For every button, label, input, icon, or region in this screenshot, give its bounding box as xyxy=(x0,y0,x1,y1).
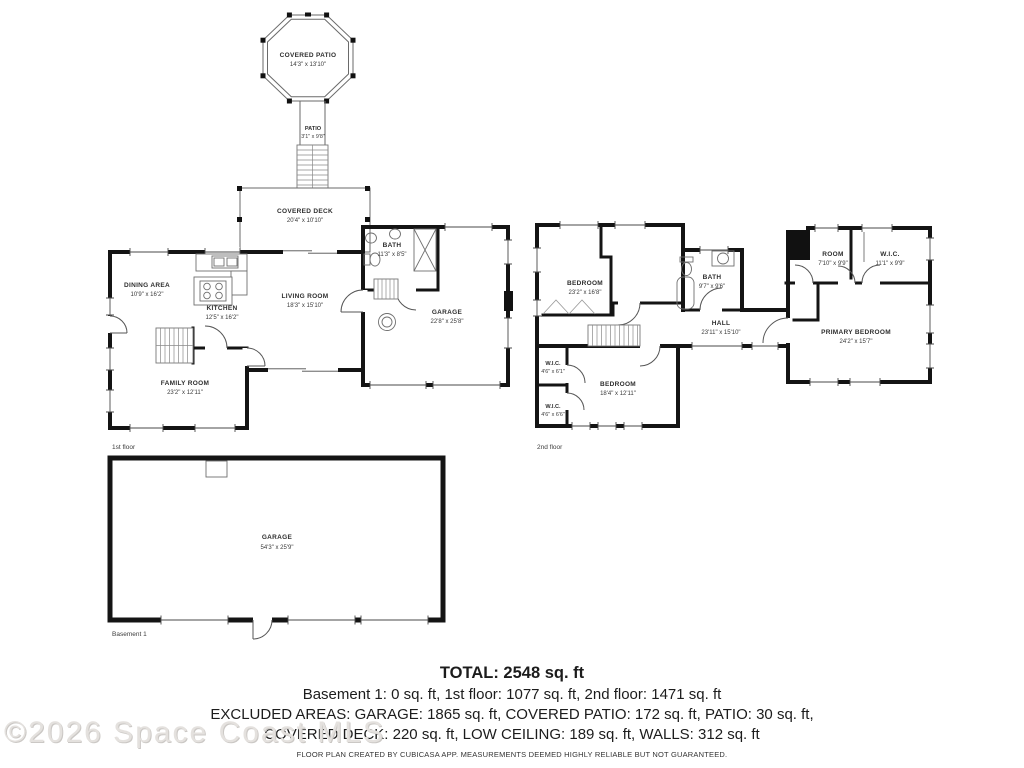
room-label-bath-1f: BATH 11'3" x 8'5" xyxy=(377,242,406,258)
total-area: TOTAL: 2548 sq. ft xyxy=(0,664,1024,683)
room-name: BEDROOM xyxy=(600,381,636,388)
room-dims: 9'7" x 9'6" xyxy=(699,284,725,290)
room-dims: 20'4" x 10'10" xyxy=(287,218,323,224)
room-dims: 3'1" x 9'8" xyxy=(301,134,325,140)
door xyxy=(563,393,584,410)
room-label-bath-2f: BATH 9'7" x 9'6" xyxy=(699,274,725,290)
room-label-bedroom-2f: BEDROOM 18'4" x 12'11" xyxy=(600,381,636,397)
sliding-door xyxy=(283,248,337,257)
window xyxy=(106,390,115,412)
room-name: ROOM xyxy=(822,251,843,258)
window xyxy=(615,221,645,230)
window xyxy=(926,238,935,260)
window xyxy=(862,224,892,233)
door xyxy=(763,318,793,343)
room-name: COVERED PATIO xyxy=(280,52,337,59)
door xyxy=(563,365,585,383)
room-dims: 12'5" x 16'2" xyxy=(206,315,239,321)
door xyxy=(640,342,660,367)
room-name: GARAGE xyxy=(262,534,293,541)
room-name: PRIMARY BEDROOM xyxy=(821,329,891,336)
room-name: LIVING ROOM xyxy=(282,293,329,300)
floor-plan-page: COVERED PATIO 14'3" x 13'10" PATIO 3'1" … xyxy=(0,0,1024,768)
window xyxy=(810,378,838,387)
room-name: BATH xyxy=(383,242,402,249)
room-name: BATH xyxy=(703,274,722,281)
window xyxy=(504,318,513,348)
window xyxy=(195,424,235,433)
window xyxy=(106,348,115,370)
room-dims: 23'2" x 12'11" xyxy=(167,390,203,396)
room-dims: 18'3" x 15'10" xyxy=(287,303,323,309)
room-dims: 4'6" x 6'6" xyxy=(541,412,565,418)
room-name: BEDROOM xyxy=(567,280,603,287)
room-label-patio: PATIO 3'1" x 9'8" xyxy=(301,126,325,140)
door xyxy=(253,615,272,639)
window xyxy=(926,305,935,333)
floor-plan-drawing: COVERED PATIO 14'3" x 13'10" PATIO 3'1" … xyxy=(0,0,1024,768)
room-label-hall: HALL 23'11" x 15'10" xyxy=(701,320,740,336)
room-label-dining-area: DINING AREA 10'9" x 16'2" xyxy=(124,282,170,298)
door xyxy=(205,326,227,353)
room-label-wic-right: W.I.C. 11'1" x 9'9" xyxy=(875,251,904,267)
window xyxy=(533,300,542,316)
garage-door xyxy=(370,381,426,390)
room-label-garage-1f: GARAGE 22'8" x 25'8" xyxy=(431,309,464,325)
window xyxy=(815,224,838,233)
floor-label-second: 2nd floor xyxy=(537,444,563,451)
door xyxy=(700,288,722,314)
room-dims: 18'4" x 12'11" xyxy=(600,391,636,397)
basement-plan: GARAGE 54'3" x 25'9" Basement 1 xyxy=(110,458,443,639)
door xyxy=(341,290,368,312)
disclaimer: FLOOR PLAN CREATED BY CUBICASA APP. MEAS… xyxy=(0,750,1024,759)
window xyxy=(106,298,115,315)
low-ceiling-marks xyxy=(543,300,595,314)
window xyxy=(130,424,163,433)
window xyxy=(926,344,935,368)
room-label-wic-lower: W.I.C. 4'6" x 6'6" xyxy=(541,404,565,418)
door xyxy=(243,348,266,366)
room-name: W.I.C. xyxy=(545,404,561,410)
room-name: PATIO xyxy=(305,126,322,132)
room-name: W.I.C. xyxy=(545,361,561,367)
garage-door xyxy=(433,381,500,390)
second-floor-plan: BEDROOM 23'2" x 16'8" BATH 9'7" x 9'6" H… xyxy=(533,221,935,452)
door xyxy=(795,265,813,287)
room-label-garage-basement: GARAGE 54'3" x 25'9" xyxy=(261,534,294,551)
room-dims: 54'3" x 25'9" xyxy=(261,545,294,551)
window xyxy=(361,615,428,625)
room-dims: 23'11" x 15'10" xyxy=(701,330,740,336)
room-label-living-room: LIVING ROOM 18'3" x 15'10" xyxy=(282,293,329,309)
floor-label-first: 1st floor xyxy=(112,444,136,451)
room-label-primary-bedroom: PRIMARY BEDROOM 24'2" x 15'7" xyxy=(821,329,891,345)
room-dims: 23'2" x 16'8" xyxy=(569,290,602,296)
stairs xyxy=(588,325,640,346)
room-name: KITCHEN xyxy=(207,305,238,312)
room-dims: 4'6" x 6'1" xyxy=(541,369,565,375)
room-name: FAMILY ROOM xyxy=(161,380,209,387)
first-floor-plan: DINING AREA 10'9" x 16'2" KITCHEN 12'5" … xyxy=(106,223,514,452)
window xyxy=(572,422,590,431)
mls-watermark: ©2026 Space Coast MLS xyxy=(4,716,385,750)
sliding-door xyxy=(268,366,338,375)
room-label-wic-upper: W.I.C. 4'6" x 6'1" xyxy=(541,361,565,375)
room-name: W.I.C. xyxy=(880,251,900,258)
kitchen-island-stove xyxy=(194,277,232,305)
door xyxy=(618,299,640,325)
room-name: DINING AREA xyxy=(124,282,170,289)
garage-stairs xyxy=(374,279,398,299)
window xyxy=(445,223,492,232)
floor-label-basement: Basement 1 xyxy=(112,631,147,638)
wall-post xyxy=(504,291,513,311)
room-name: COVERED DECK xyxy=(277,208,333,215)
window xyxy=(504,240,513,264)
room-dims: 11'3" x 8'5" xyxy=(377,252,406,258)
door xyxy=(106,316,128,333)
door xyxy=(396,286,416,310)
window xyxy=(161,615,228,625)
window xyxy=(752,342,778,351)
floor-areas: Basement 1: 0 sq. ft, 1st floor: 1077 sq… xyxy=(0,686,1024,703)
room-dims: 11'1" x 9'9" xyxy=(875,261,904,267)
door xyxy=(862,265,880,287)
room-label-family-room: FAMILY ROOM 23'2" x 12'11" xyxy=(161,380,209,396)
window xyxy=(692,342,742,351)
walkway-stairs xyxy=(297,145,328,188)
chimney xyxy=(786,230,810,260)
patio-walkway-plan: PATIO 3'1" x 9'8" xyxy=(297,101,328,188)
covered-deck-plan: COVERED DECK 20'4" x 10'10" xyxy=(237,186,370,252)
room-label-covered-deck: COVERED DECK 20'4" x 10'10" xyxy=(277,208,333,224)
window xyxy=(560,221,598,230)
window xyxy=(130,248,168,257)
room-dims: 7'10" x 9'9" xyxy=(818,261,848,267)
room-label-bedroom-large: BEDROOM 23'2" x 16'8" xyxy=(567,280,603,296)
room-label-room: ROOM 7'10" x 9'9" xyxy=(818,251,848,267)
room-name: GARAGE xyxy=(432,309,463,316)
room-label-kitchen: KITCHEN 12'5" x 16'2" xyxy=(206,305,239,321)
water-heater xyxy=(379,314,396,331)
covered-patio-plan: COVERED PATIO 14'3" x 13'10" xyxy=(261,13,356,104)
window xyxy=(288,615,355,625)
room-label-covered-patio: COVERED PATIO 14'3" x 13'10" xyxy=(280,52,337,68)
basement-nook xyxy=(206,461,227,477)
window xyxy=(533,248,542,272)
room-dims: 24'2" x 15'7" xyxy=(840,339,873,345)
bathroom-fixtures xyxy=(364,229,436,271)
room-dims: 14'3" x 13'10" xyxy=(290,62,326,68)
room-name: HALL xyxy=(712,320,731,327)
window xyxy=(850,378,880,387)
stairs xyxy=(156,328,193,363)
window xyxy=(624,422,642,431)
room-dims: 10'9" x 16'2" xyxy=(131,292,164,298)
room-dims: 22'8" x 25'8" xyxy=(431,319,464,325)
window xyxy=(598,422,616,431)
